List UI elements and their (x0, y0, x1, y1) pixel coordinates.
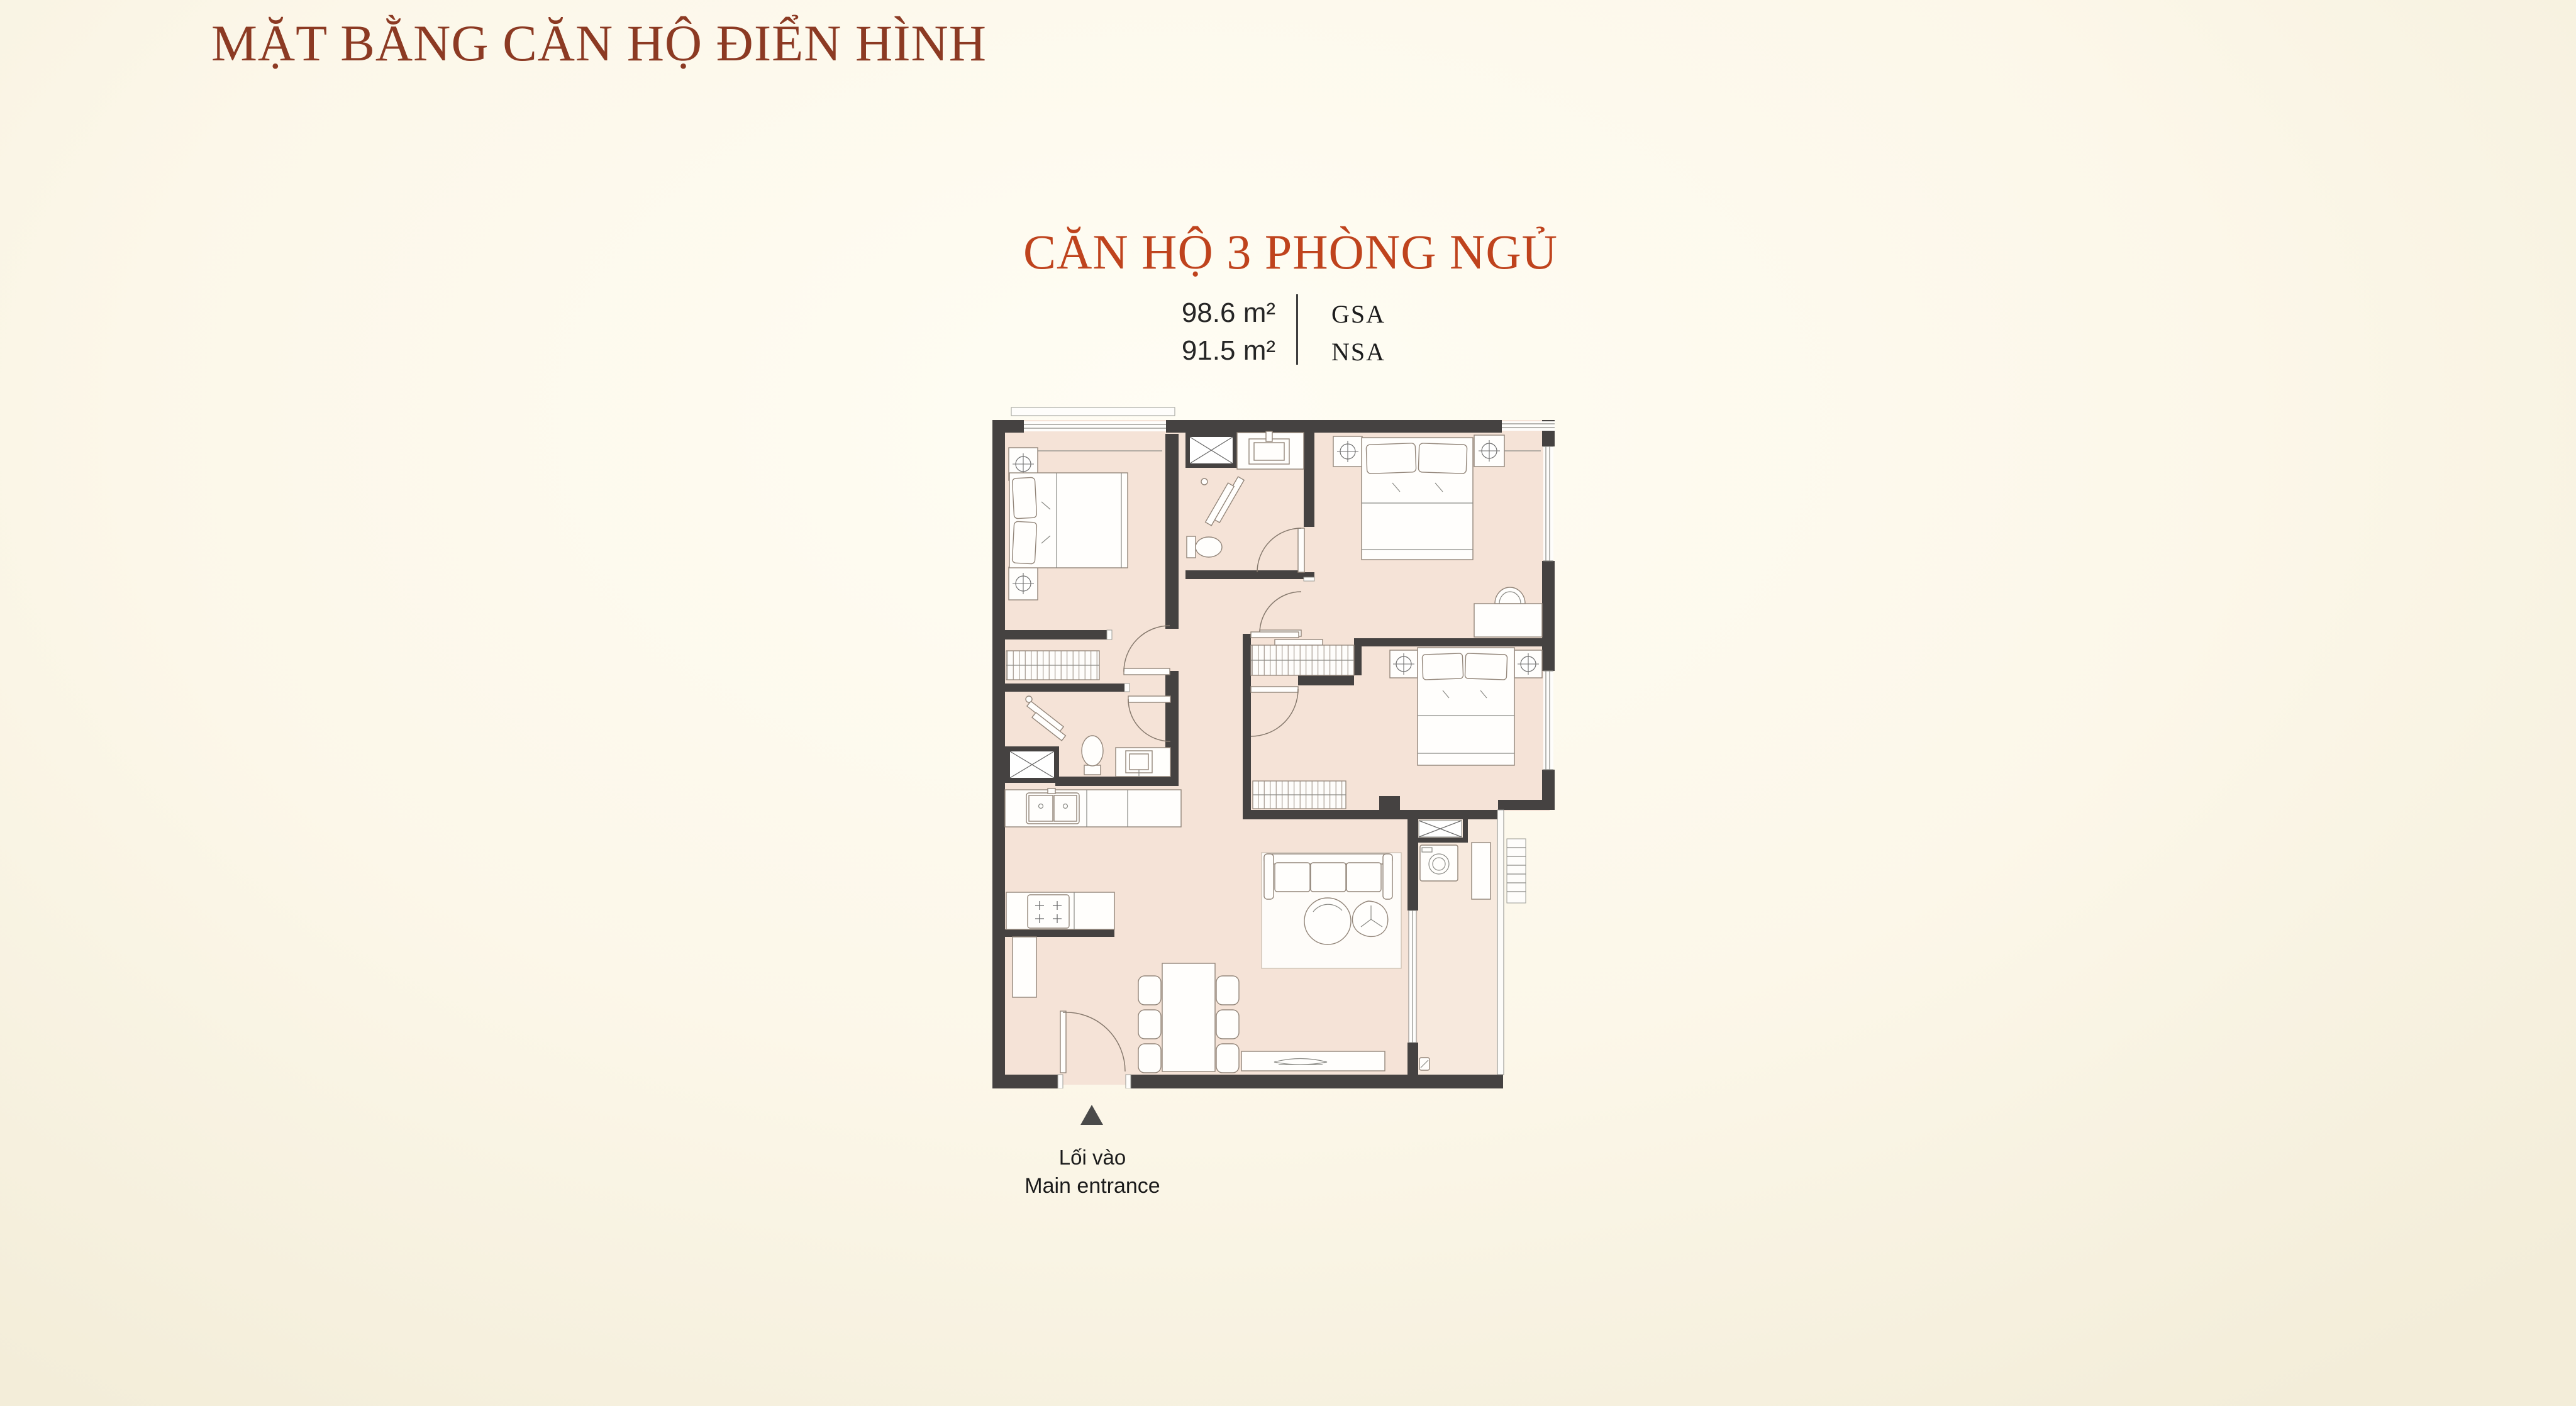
armchair (1352, 901, 1387, 936)
sink-2 (1116, 748, 1170, 777)
area-nsa-label: NSA (1331, 340, 1457, 365)
window-top-right (1502, 421, 1555, 431)
kitchen-counter-stove (1006, 892, 1114, 929)
entrance-label-en: Main entrance (982, 1175, 1202, 1197)
bed-3 (1418, 648, 1514, 765)
balcony-railing (1497, 810, 1504, 1075)
balcony-glass-door (1409, 911, 1416, 1043)
chair (1216, 1044, 1239, 1073)
coffee-table (1304, 898, 1351, 944)
kitchen-counter-sink (1005, 789, 1181, 827)
shaft-bathroom1 (1185, 433, 1237, 468)
dining-table (1138, 963, 1239, 1073)
bed-1 (1009, 473, 1128, 568)
bed-2 (1362, 438, 1473, 560)
shaft-wc2 (1005, 746, 1059, 783)
entrance-labels: Lối vào Main entrance (982, 1147, 1202, 1197)
area-gsa-label: GSA (1331, 302, 1457, 327)
entrance-label-vi: Lối vào (982, 1147, 1202, 1168)
floor-plan (992, 406, 1555, 1088)
area-gsa-value: 98.6 m² (1131, 299, 1275, 327)
window-bedroom3-right (1543, 671, 1553, 770)
fridge-cabinet (1013, 937, 1036, 997)
stove (1028, 895, 1069, 928)
toilet-2 (1082, 736, 1103, 775)
chair (1138, 1044, 1161, 1073)
washing-machine (1420, 845, 1458, 881)
floor-drain (1419, 1058, 1430, 1070)
area-nsa-value: 91.5 m² (1131, 337, 1275, 365)
chair (1138, 976, 1161, 1005)
chair (1138, 1010, 1161, 1039)
balcony-bench (1472, 843, 1491, 899)
chair (1216, 1010, 1239, 1039)
unit-name: CĂN HỘ 3 PHÒNG NGỦ (976, 224, 1605, 280)
up-triangle-icon (1080, 1105, 1103, 1125)
ac-ledge (1011, 407, 1175, 416)
tv-console (1241, 1051, 1385, 1071)
chair (1216, 976, 1239, 1005)
area-divider (1296, 294, 1298, 365)
ac-condenser-ledge (1507, 839, 1526, 903)
page-title: MẶT BẰNG CĂN HỘ ĐIỂN HÌNH (211, 14, 987, 73)
shaft-balcony (1418, 819, 1468, 843)
sink-1 (1237, 431, 1304, 469)
toilet-1 (1187, 536, 1222, 558)
